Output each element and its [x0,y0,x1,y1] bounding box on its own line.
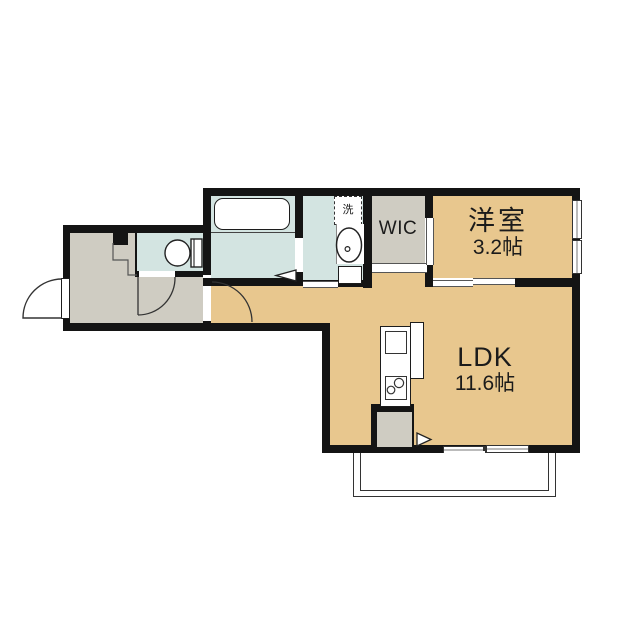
bathroom-partition-line [211,232,295,233]
western-room-name: 洋室 [433,206,563,236]
wic-front-door [372,263,427,273]
wall-top [203,188,580,196]
bedroom-window-lower [572,240,582,274]
washbasin-counter [336,224,364,264]
entry-column [113,233,128,245]
bedroom-window-upper [572,200,582,239]
wall-bath-bottom [203,278,303,286]
kitchen-stove [385,376,407,400]
wall-wic-bedroom-upper [425,196,433,218]
wall-ldk-west [322,331,330,453]
wall-washroom-wic [363,196,372,288]
western-room-label: 洋室 3.2帖 [433,206,563,260]
kitchen-sink [385,331,407,354]
ldk-area: 11.6帖 [410,372,560,396]
wall-entry-left-a [63,233,70,278]
washroom-door [303,281,338,288]
wall-entry-top [63,225,211,233]
ldk-label: LDK 11.6帖 [410,342,560,396]
ldk-name: LDK [410,342,560,372]
bathtub [214,198,290,230]
western-room-area: 3.2帖 [433,236,563,260]
wall-bottom-west [63,323,330,331]
entrance-door-arc [23,279,62,318]
wall-toilet-left [135,233,137,273]
wic-label-text: WIC [379,218,417,239]
entrance-door-leaf [61,278,70,319]
washroom-step-box [338,266,362,284]
bath-door-opening [295,238,303,272]
balcony-inner-rail [360,453,549,491]
laundry-label: 洗 [334,196,362,225]
bedroom-sliding-door-panel-1 [433,280,473,287]
wic-label: WIC [369,218,427,239]
toilet-door-opening [139,271,175,277]
toilet-floor [137,233,203,273]
floor-plan: 洗 WIC 洋室 3.2帖 LDK 11.6帖 [0,0,640,640]
bedroom-sliding-door-panel-2 [473,278,515,285]
wall-left-upper [203,196,211,275]
laundry-label-text: 洗 [343,204,354,216]
ldk-storage [377,412,414,447]
ldk-window-panel-2 [486,445,529,453]
wall-bedroom-divider [515,278,572,287]
